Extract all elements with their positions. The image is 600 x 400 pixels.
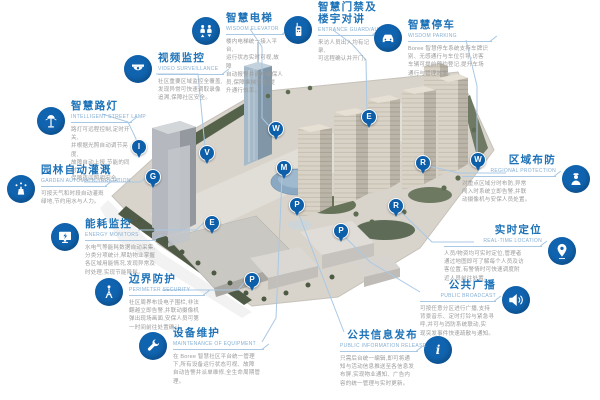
- callout-text-public-information-release: 公共信息发布PUBLIC INFORMATION RELEASE只需后台统一编辑…: [340, 330, 418, 388]
- description-line: 员,保障乘梯安全,提: [226, 79, 284, 87]
- description-line: 可按任意分区进行广播,支持: [420, 305, 496, 313]
- callout-energy-monitors: 能耗监控ENERGY MONITORS水电气等能耗数据自动采集,分类分项统计,帮…: [51, 219, 156, 277]
- callout-public-information-release: 公共信息发布PUBLIC INFORMATION RELEASE只需后台统一编辑…: [340, 330, 452, 388]
- pin-letter: W: [272, 124, 280, 133]
- car-icon: [374, 24, 402, 52]
- callout-subtitle: MAINTENANCE OF EQUIPMENT: [173, 340, 264, 350]
- description-line: 车辆可提前预约登记,提升车场: [408, 61, 492, 69]
- map-pin-g: G: [145, 169, 161, 185]
- callout-title: 智慧门禁及: [318, 2, 374, 14]
- callout-subtitle: WISDOM PARKING: [408, 32, 492, 42]
- callout-description: 只需后台统一编辑,即可将通知与活动信息推送至各信息发布屏,实现物业通知、广告内容…: [340, 355, 418, 388]
- map-pin-r: R: [388, 198, 404, 214]
- megaphone-icon: [502, 286, 530, 314]
- callout-title: 实时定位: [444, 225, 542, 237]
- description-line: 社区周界布设电子围栏,非法: [129, 299, 205, 307]
- description-line: 呼,并可与消防系统联动,实: [420, 321, 496, 329]
- callout-description: 在 Boree 智慧社区平台统一管理下,所有设备运行状态可视、故障自动告警并派单…: [173, 353, 264, 386]
- street-lamp-icon: [37, 107, 65, 135]
- pin-letter: M: [281, 163, 288, 172]
- callout-regional-protection: 区域布防REGIONAL PROTECTION对重点区域分时布防,异常闯入时系统…: [462, 155, 590, 205]
- description-line: 水电气等能耗数据自动采集,: [85, 244, 156, 252]
- callout-subtitle: REGIONAL PROTECTION: [462, 167, 556, 177]
- pin-letter: P: [294, 200, 299, 209]
- callout-description: 来访人员出入均有记录,可远程确认并开门。: [318, 39, 374, 64]
- callout-description: 对重点区域分时布防,异常闯入时系统立即告警,并联动摄像机与安保人员处置。: [462, 180, 556, 205]
- callout-title: 公共广播: [420, 280, 496, 292]
- description-line: 自动告警并派单维修,全生命周期管理。: [173, 369, 264, 386]
- description-line: 闯入时系统立即告警,并联: [462, 188, 556, 196]
- callout-title: 公共信息发布: [340, 330, 418, 342]
- callout-wisdom-parking: 智慧停车WISDOM PARKINGBoree 智慧停车系统支持车牌识别、无感通…: [374, 20, 492, 78]
- map-pin-e: E: [204, 215, 220, 231]
- map-pin-r: R: [415, 155, 431, 171]
- map-pin-p: P: [244, 272, 260, 288]
- smart-community-diagram: VIGEPMWEWRRPP 视频监控VIDEO SURVEILLANCE社区重要…: [0, 0, 600, 400]
- svg-text:i: i: [436, 343, 441, 357]
- description-line: 来访人员出入均有记录,: [318, 39, 374, 56]
- map-pin-p: P: [289, 197, 305, 213]
- wrench-icon: [139, 332, 167, 360]
- callout-subtitle: ENTRANCE GUARD/AUDIO: [318, 26, 374, 36]
- description-line: 升通行效率。: [226, 87, 284, 95]
- description-line: 弹出现场画面,安保人员可第: [129, 315, 205, 323]
- callout-title-line2: 楼宇对讲: [318, 14, 374, 26]
- callout-description: 楼内电梯统一接入平台,运行状态实时可视,故障自动报警并通知维保人员,保障乘梯安全…: [226, 38, 284, 96]
- description-line: 运行状态实时可视,故障: [226, 54, 284, 71]
- callout-description: Boree 智慧停车系统支持车牌识别、无感通行与车位引导,访客车辆可提前预约登记…: [408, 45, 492, 78]
- description-line: 知与活动信息推送至各信息发: [340, 363, 418, 371]
- map-pin-i: I: [131, 139, 147, 155]
- callout-text-wisdom-parking: 智慧停车WISDOM PARKINGBoree 智慧停车系统支持车牌识别、无感通…: [408, 20, 492, 78]
- description-line: 绿地,节约用水与人力。: [41, 198, 107, 206]
- pin-letter: V: [204, 148, 209, 157]
- callout-title: 智慧电梯: [226, 13, 284, 25]
- callout-description: 水电气等能耗数据自动采集,分类分项统计,帮助物业掌握各区域用能情况,发现异常及时…: [85, 244, 156, 277]
- callout-text-wisdom-elevator: 智慧电梯WISDOM ELEVATOR楼内电梯统一接入平台,运行状态实时可视,故…: [226, 13, 284, 96]
- callout-text-maintenance-of-equipment: 设备维护MAINTENANCE OF EQUIPMENT在 Boree 智慧社区…: [173, 328, 264, 386]
- description-line: 路灯可远程控制,定时开关,: [71, 126, 132, 143]
- description-line: 对重点区域分时布防,异常: [462, 180, 556, 188]
- pin-letter: E: [209, 218, 214, 227]
- description-line: 自动报警并通知维保人: [226, 71, 284, 79]
- description-line: 通行与管理效率。: [408, 70, 492, 78]
- callout-title: 设备维护: [173, 328, 264, 340]
- callout-maintenance-of-equipment: 设备维护MAINTENANCE OF EQUIPMENT在 Boree 智慧社区…: [139, 328, 264, 386]
- callout-title: 智慧路灯: [71, 101, 132, 113]
- description-line: 可远程确认并开门。: [318, 55, 374, 63]
- info-icon: i: [424, 336, 452, 364]
- intercom-icon: [284, 16, 312, 44]
- map-pin-p: P: [333, 223, 349, 239]
- description-line: 翻越立即告警,并联动摄像机: [129, 307, 205, 315]
- pin-letter: R: [420, 158, 426, 167]
- description-line: 在 Boree 智慧社区平台统一管理: [173, 353, 264, 361]
- callout-text-real-time-location: 实时定位REAL-TIME LOCATION人员/物资均可实时定位,管理者通过地…: [444, 225, 542, 283]
- description-line: 楼内电梯统一接入平台,: [226, 38, 284, 55]
- callout-title: 区域布防: [462, 155, 556, 167]
- callout-garden-automatic-irrigation: 园林自动灌溉GARDEN AUTOMATIC IRRIGATION可按天气和时段…: [7, 165, 107, 206]
- location-pin-icon: [548, 237, 576, 265]
- callout-text-garden-automatic-irrigation: 园林自动灌溉GARDEN AUTOMATIC IRRIGATION可按天气和时段…: [41, 165, 107, 206]
- callout-title: 智慧停车: [408, 20, 492, 32]
- callout-subtitle: REAL-TIME LOCATION: [444, 237, 542, 247]
- callout-subtitle: WISDOM ELEVATOR: [226, 25, 284, 35]
- map-pin-m: M: [276, 160, 292, 176]
- callout-text-energy-monitors: 能耗监控ENERGY MONITORS水电气等能耗数据自动采集,分类分项统计,帮…: [85, 219, 156, 277]
- callout-subtitle: ENERGY MONITORS: [85, 231, 156, 241]
- description-line: 动摄像机与安保人员处置。: [462, 196, 556, 204]
- callout-title: 园林自动灌溉: [41, 165, 107, 177]
- pin-letter: E: [366, 112, 371, 121]
- callout-description: 可按天气和时段自动灌溉绿地,节约用水与人力。: [41, 190, 107, 207]
- callout-text-perimeter-security: 边界防护PERIMETER SECURITY社区周界布设电子围栏,非法翻越立即告…: [129, 274, 205, 332]
- description-line: 分类分项统计,帮助物业掌握: [85, 252, 156, 260]
- monitor-icon: [51, 223, 79, 251]
- description-line: 并根据光照自动调节亮度,: [71, 142, 132, 159]
- callout-wisdom-elevator: 智慧电梯WISDOM ELEVATOR楼内电梯统一接入平台,运行状态实时可视,故…: [192, 13, 284, 96]
- pin-letter: I: [138, 142, 140, 151]
- callout-real-time-location: 实时定位REAL-TIME LOCATION人员/物资均可实时定位,管理者通过地…: [444, 225, 576, 283]
- pin-letter: R: [393, 201, 399, 210]
- map-pin-v: V: [199, 145, 215, 161]
- dome-camera-icon: [124, 55, 152, 83]
- callout-title: 能耗监控: [85, 219, 156, 231]
- guard-icon: [562, 165, 590, 193]
- callout-subtitle: PUBLIC INFORMATION RELEASE: [340, 342, 418, 352]
- callout-title: 边界防护: [129, 274, 205, 286]
- description-line: 下,所有设备运行状态可视、故障: [173, 361, 264, 369]
- callout-perimeter-security: 边界防护PERIMETER SECURITY社区周界布设电子围栏,非法翻越立即告…: [95, 274, 205, 332]
- sprinkler-icon: [7, 175, 35, 203]
- description-line: 可按天气和时段自动灌溉: [41, 190, 107, 198]
- description-line: 布屏,实现物业通知、广告内: [340, 371, 418, 379]
- callout-description: 人员/物资均可实时定位,管理者通过地图即可了解每个人员及访客位置,有警情时可快速…: [444, 250, 542, 283]
- callout-subtitle: GARDEN AUTOMATIC IRRIGATION: [41, 177, 107, 187]
- description-line: 容的统一管理与实时更新。: [340, 380, 418, 388]
- pin-letter: P: [338, 226, 343, 235]
- watchtower-icon: [95, 278, 123, 306]
- description-line: 背景音乐、定时打铃与紧急寻: [420, 313, 496, 321]
- description-line: 人员/物资均可实时定位,管理者: [444, 250, 542, 258]
- callout-text-entrance-guard: 智慧门禁及楼宇对讲ENTRANCE GUARD/AUDIO来访人员出入均有记录,…: [318, 2, 374, 63]
- description-line: 别、无感通行与车位引导,访客: [408, 53, 492, 61]
- map-pin-w: W: [268, 121, 284, 137]
- description-line: 通过地图即可了解每个人员及访: [444, 258, 542, 266]
- pin-letter: P: [249, 275, 254, 284]
- description-line: 客位置,有警情时可快速调度附: [444, 266, 542, 274]
- description-line: 各区域用能情况,发现异常及: [85, 260, 156, 268]
- callout-text-regional-protection: 区域布防REGIONAL PROTECTION对重点区域分时布防,异常闯入时系统…: [462, 155, 556, 205]
- map-pin-e: E: [361, 109, 377, 125]
- elevator-icon: [192, 17, 220, 45]
- callout-subtitle: PERIMETER SECURITY: [129, 286, 205, 296]
- pin-letter: G: [150, 172, 156, 181]
- description-line: 只需后台统一编辑,即可将通: [340, 355, 418, 363]
- callout-entrance-guard: 智慧门禁及楼宇对讲ENTRANCE GUARD/AUDIO来访人员出入均有记录,…: [284, 2, 374, 63]
- callout-subtitle: INTELLIGENT STREET LAMP: [71, 113, 132, 123]
- callout-subtitle: PUBLIC BROADCAST: [420, 292, 496, 302]
- description-line: Boree 智慧停车系统支持车牌识: [408, 45, 492, 53]
